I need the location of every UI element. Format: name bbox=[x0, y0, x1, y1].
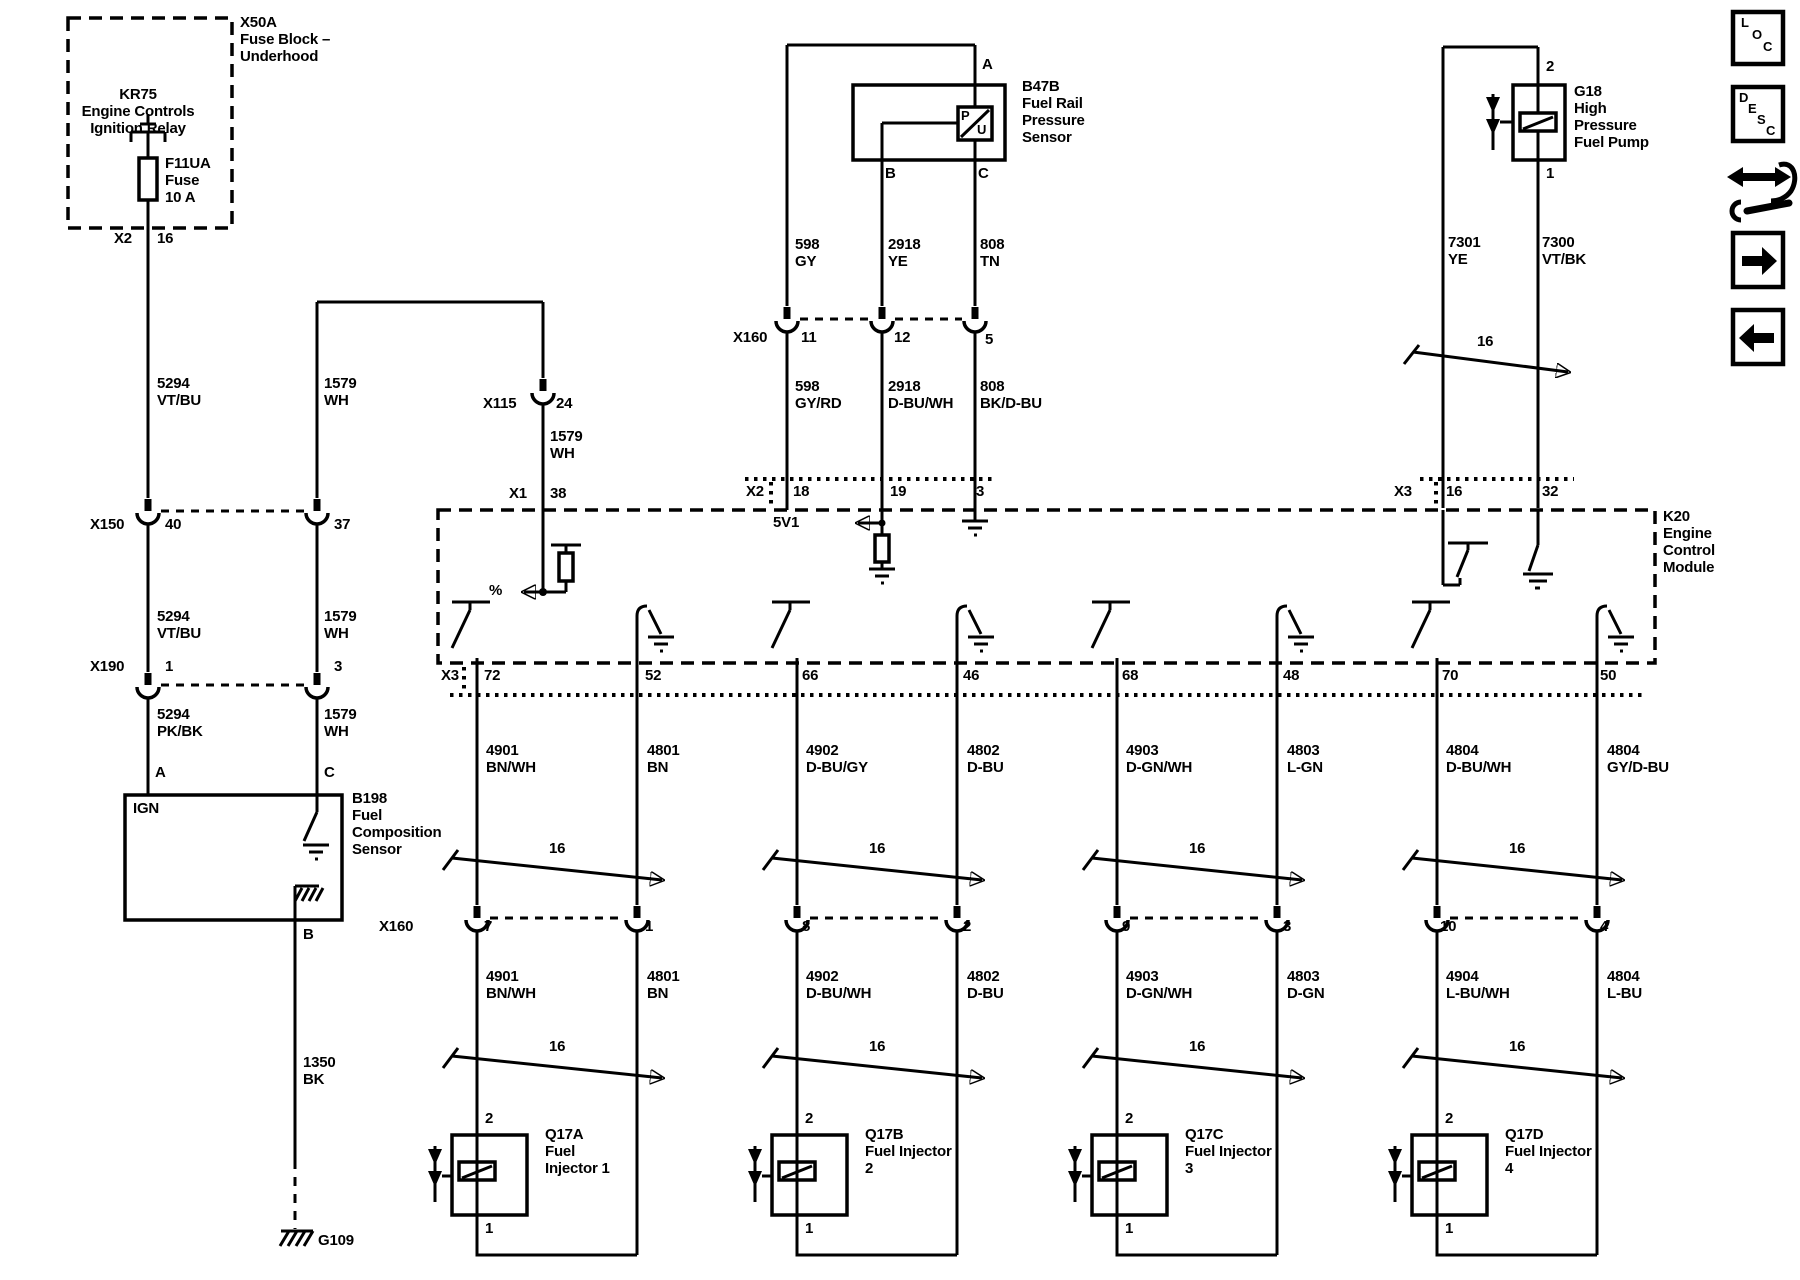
pu-transducer-u: U bbox=[977, 121, 986, 138]
twisted-16-l3: 16 bbox=[1189, 1038, 1205, 1055]
x150-pin-37: 37 bbox=[334, 516, 350, 533]
x190-pin-1: 1 bbox=[165, 658, 173, 675]
q17c-pin-1: 1 bbox=[1125, 1220, 1133, 1237]
q17d-label: Q17DFuel Injector4 bbox=[1505, 1126, 1592, 1177]
ecm-x3-top-label: X3 bbox=[1394, 483, 1412, 500]
relay-label: KR75Engine ControlsIgnition Relay bbox=[70, 86, 206, 137]
x160-pin-3b: 3 bbox=[1283, 918, 1291, 935]
twisted-16-u3: 16 bbox=[1189, 840, 1205, 857]
b47b-pin-c: C bbox=[978, 165, 989, 182]
b47b-pin-b: B bbox=[885, 165, 896, 182]
connector-x1-label: X1 bbox=[509, 485, 527, 502]
g109-ground-icon bbox=[280, 1231, 313, 1246]
wire-1350-bk: 1350BK bbox=[303, 1054, 336, 1088]
fuse-label: F11UAFuse10 A bbox=[165, 155, 211, 206]
connector-x160-bottom-icon bbox=[786, 918, 968, 931]
wire-1579-wh-a: 1579WH bbox=[324, 375, 357, 409]
ecm-injector-driver-icon bbox=[1412, 602, 1450, 648]
fuel-injector-icon bbox=[1068, 1135, 1167, 1215]
wire-4901-bnwh-lower: 4901BN/WH bbox=[486, 968, 536, 1002]
wire-598-gyrd: 598GY/RD bbox=[795, 378, 842, 412]
x160-pin-7: 7 bbox=[484, 918, 492, 935]
ecm-x3-bottom-label: X3 bbox=[441, 667, 459, 684]
wire-4902-dbugy-upper: 4902D-BU/GY bbox=[806, 742, 868, 776]
fuel-injector-icon bbox=[1388, 1135, 1487, 1215]
ecm-injector-low-switch-icon bbox=[1597, 606, 1634, 663]
x160-pin-4: 4 bbox=[1600, 918, 1608, 935]
ecm-injector-driver-icon bbox=[1092, 602, 1130, 648]
x160-pin-11: 11 bbox=[801, 329, 816, 346]
wire-4901-bnwh-upper: 4901BN/WH bbox=[486, 742, 536, 776]
wire-4804-gydbu-upper: 4804GY/D-BU bbox=[1607, 742, 1669, 776]
wire-4801-bn-lower: 4801BN bbox=[647, 968, 680, 1002]
wire-4903-dgnwh-lower: 4903D-GN/WH bbox=[1126, 968, 1192, 1002]
wire-2918-dbuwh: 2918D-BU/WH bbox=[888, 378, 953, 412]
ecm-x3-pin-70: 70 bbox=[1442, 667, 1458, 684]
ecm-percent-input-icon bbox=[524, 545, 581, 596]
q17a-pin-2: 2 bbox=[485, 1110, 493, 1127]
twisted-16-u4: 16 bbox=[1509, 840, 1525, 857]
ecm-x2-pin-19: 19 bbox=[890, 483, 906, 500]
twisted-16-l1: 16 bbox=[549, 1038, 565, 1055]
wire-2918-ye: 2918YE bbox=[888, 236, 921, 270]
ecm-x3-pin-16: 16 bbox=[1446, 483, 1462, 500]
k20-label: K20EngineControlModule bbox=[1663, 508, 1715, 576]
x190-pin-3: 3 bbox=[334, 658, 342, 675]
loc-letter-o: O bbox=[1752, 26, 1762, 43]
wire-598-gy: 598GY bbox=[795, 236, 819, 270]
twisted-16-l4: 16 bbox=[1509, 1038, 1525, 1055]
switch-to-ground-icon bbox=[303, 795, 329, 859]
connector-x160-top-label: X160 bbox=[733, 329, 767, 346]
fuel-rail-pressure-sensor bbox=[787, 45, 1005, 160]
connector-x160-bottom-label: X160 bbox=[379, 918, 413, 935]
wire-1579-wh-d: 1579WH bbox=[550, 428, 583, 462]
pu-transducer-p: P bbox=[961, 107, 969, 124]
twisted-16-u2: 16 bbox=[869, 840, 885, 857]
x160-pin-8: 8 bbox=[802, 918, 810, 935]
wire-4802-dbu-upper: 4802D-BU bbox=[967, 742, 1004, 776]
q17a-label: Q17AFuelInjector 1 bbox=[545, 1126, 610, 1177]
fuel-composition-sensor bbox=[125, 795, 342, 1160]
b198-pin-b: B bbox=[303, 926, 314, 943]
ecm-x3-pin-52: 52 bbox=[645, 667, 661, 684]
x160-pin-9: 9 bbox=[1122, 918, 1130, 935]
wire-7301-ye: 7301YE bbox=[1448, 234, 1481, 268]
fuse-block-label: X50AFuse Block –Underhood bbox=[240, 14, 330, 65]
x160-pin-2: 2 bbox=[963, 918, 971, 935]
ecm-x3-pin-32: 32 bbox=[1542, 483, 1558, 500]
ground-g109-label: G109 bbox=[318, 1232, 354, 1249]
g18-pin-1: 1 bbox=[1546, 165, 1554, 182]
b198-ign-label: IGN bbox=[133, 800, 159, 817]
g18-label: G18HighPressureFuel Pump bbox=[1574, 83, 1649, 151]
high-pressure-fuel-pump bbox=[1404, 47, 1568, 508]
wire-5294-pkbk: 5294PK/BK bbox=[157, 706, 203, 740]
ecm-injector-driver-icon bbox=[772, 602, 810, 648]
wire-5294-vtbu-b: 5294VT/BU bbox=[157, 608, 201, 642]
ecm-x2-pin-18: 18 bbox=[793, 483, 809, 500]
ecm-x3-pin-46: 46 bbox=[963, 667, 979, 684]
b47b-pin-a: A bbox=[982, 56, 993, 73]
twisted-16-l2: 16 bbox=[869, 1038, 885, 1055]
wire-4803-dgn-lower: 4803D-GN bbox=[1287, 968, 1325, 1002]
twisted-16-u1: 16 bbox=[549, 840, 565, 857]
wire-4801-bn-upper: 4801BN bbox=[647, 742, 680, 776]
q17b-label: Q17BFuel Injector2 bbox=[865, 1126, 952, 1177]
wire-4804-lbu-lower: 4804L-BU bbox=[1607, 968, 1642, 1002]
q17c-pin-2: 2 bbox=[1125, 1110, 1133, 1127]
wire-808-tn: 808TN bbox=[980, 236, 1004, 270]
b47b-label: B47BFuel RailPressureSensor bbox=[1022, 78, 1085, 146]
x1-pin-38: 38 bbox=[550, 485, 566, 502]
connector-x2-pin: 16 bbox=[157, 230, 173, 247]
ecm-x3-pin-72: 72 bbox=[484, 667, 500, 684]
connector-x115-icon bbox=[532, 393, 554, 404]
ecm-outline bbox=[438, 479, 1655, 695]
left-arrow-icon bbox=[1739, 324, 1774, 352]
desc-letter-c: C bbox=[1766, 122, 1775, 139]
twisted-16-pump: 16 bbox=[1477, 333, 1493, 350]
q17b-pin-1: 1 bbox=[805, 1220, 813, 1237]
ecm-x3-pin-50: 50 bbox=[1600, 667, 1616, 684]
x160-pin-5: 5 bbox=[985, 331, 993, 348]
wire-4803-lgn-upper: 4803L-GN bbox=[1287, 742, 1323, 776]
wire-7300-vtbk: 7300VT/BK bbox=[1542, 234, 1586, 268]
wire-1579-wh-b: 1579WH bbox=[324, 608, 357, 642]
connector-x160-bottom-icon bbox=[1106, 918, 1288, 931]
percent-signal-label: % bbox=[489, 582, 502, 599]
connector-x150-label: X150 bbox=[90, 516, 124, 533]
g18-pin-2: 2 bbox=[1546, 58, 1554, 75]
ecm-x3-pin-48: 48 bbox=[1283, 667, 1299, 684]
x160-pin-12: 12 bbox=[894, 329, 910, 346]
ecm-5v1-label: 5V1 bbox=[773, 514, 799, 531]
desc-letter-e: E bbox=[1748, 100, 1756, 117]
wire-4904-lbuwh-lower: 4904L-BU/WH bbox=[1446, 968, 1510, 1002]
ecm-x3-pin-66: 66 bbox=[802, 667, 818, 684]
wire-4903-dgnwh-upper: 4903D-GN/WH bbox=[1126, 742, 1192, 776]
loc-letter-c: C bbox=[1763, 38, 1772, 55]
desc-letter-d: D bbox=[1739, 89, 1748, 106]
wire-4804-dbuwh-upper: 4804D-BU/WH bbox=[1446, 742, 1511, 776]
connector-x160-bottom-icon bbox=[466, 918, 648, 931]
ecm-x2-label: X2 bbox=[746, 483, 764, 500]
x160-pin-1: 1 bbox=[645, 918, 653, 935]
ecm-x3-pin-68: 68 bbox=[1122, 667, 1138, 684]
wire-1579-wh-c: 1579WH bbox=[324, 706, 357, 740]
wire-808-bkdbu: 808BK/D-BU bbox=[980, 378, 1042, 412]
valve-icon bbox=[1486, 94, 1513, 150]
q17b-pin-2: 2 bbox=[805, 1110, 813, 1127]
connector-x190-label: X190 bbox=[90, 658, 124, 675]
ecm-5v-reference bbox=[858, 510, 988, 583]
ecm-x2-pin-3: 3 bbox=[976, 483, 984, 500]
ecm-injector-driver-icon bbox=[452, 602, 490, 648]
diagram-canvas bbox=[0, 0, 1800, 1280]
b198-pin-a: A bbox=[155, 764, 166, 781]
wire-5294-vtbu-a: 5294VT/BU bbox=[157, 375, 201, 409]
desc-letter-s: S bbox=[1757, 111, 1765, 128]
fuel-injector-icon bbox=[428, 1135, 527, 1215]
b198-label: B198FuelCompositionSensor bbox=[352, 790, 441, 858]
q17d-pin-1: 1 bbox=[1445, 1220, 1453, 1237]
x115-pin-24: 24 bbox=[556, 395, 572, 412]
connector-x2-label: X2 bbox=[114, 230, 132, 247]
x150-pin-40: 40 bbox=[165, 516, 181, 533]
wire-4902-dbuwh-lower: 4902D-BU/WH bbox=[806, 968, 871, 1002]
loc-letter-l: L bbox=[1741, 14, 1749, 31]
ecm-injector-low-switch-icon bbox=[1277, 606, 1314, 663]
fuel-injector-icon bbox=[748, 1135, 847, 1215]
b198-pin-c: C bbox=[324, 764, 335, 781]
wiring-diagram: X50AFuse Block –UnderhoodKR75Engine Cont… bbox=[0, 0, 1800, 1280]
back-button[interactable] bbox=[1733, 310, 1783, 364]
right-arrow-icon bbox=[1742, 247, 1777, 275]
ecm-injector-low-switch-icon bbox=[637, 606, 674, 663]
x160-pin-10: 10 bbox=[1440, 918, 1456, 935]
connector-x190-icon bbox=[137, 685, 328, 698]
fuse-icon bbox=[139, 158, 157, 200]
forward-button[interactable] bbox=[1733, 233, 1783, 287]
chassis-ground-icon bbox=[295, 886, 323, 901]
swap-tool-icon[interactable] bbox=[1727, 164, 1795, 220]
sensor-wires bbox=[776, 45, 986, 510]
q17a-pin-1: 1 bbox=[485, 1220, 493, 1237]
wire-4802-dbu-lower: 4802D-BU bbox=[967, 968, 1004, 1002]
connector-x115-label: X115 bbox=[483, 395, 516, 412]
ecm-injector-low-switch-icon bbox=[957, 606, 994, 663]
q17c-label: Q17CFuel Injector3 bbox=[1185, 1126, 1272, 1177]
q17d-pin-2: 2 bbox=[1445, 1110, 1453, 1127]
solenoid-icon bbox=[1520, 113, 1556, 131]
ecm-pump-driver-icon bbox=[1443, 510, 1553, 588]
